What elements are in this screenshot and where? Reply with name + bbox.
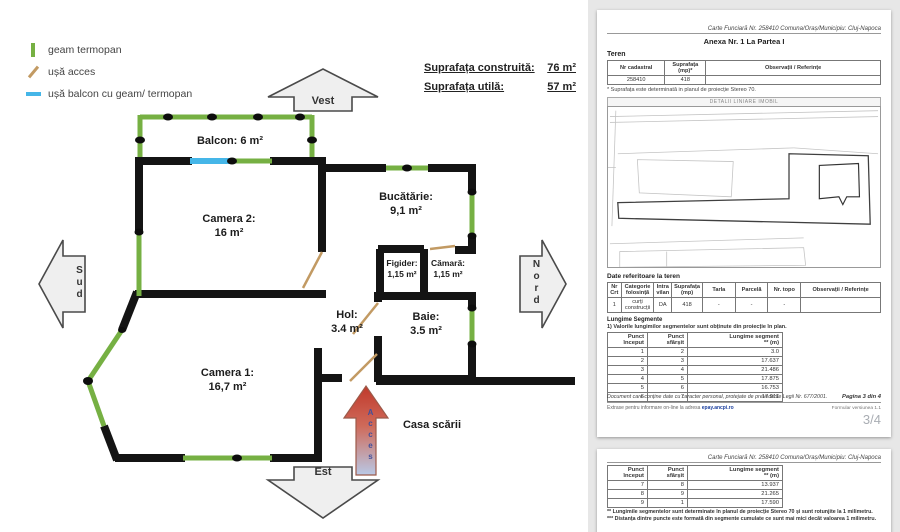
compass-west-label: Vest (292, 95, 354, 107)
col-observatii: Observații / Referințe (706, 61, 881, 76)
built-area-value: 76 m² (547, 62, 576, 74)
carte-funciara-header: Carte Funciară Nr. 258410 Comuna/Oraș/Mu… (607, 26, 881, 34)
date-teren-table: Nr Crt Categorie folosință Intra vilan S… (607, 282, 881, 313)
table-header-row: Punct început Punct sfârșit Lungime segm… (608, 333, 783, 348)
cell-suprafata: 418 (665, 76, 706, 85)
cell: 13.937 (688, 481, 783, 490)
footnote-distanta: *** Distanța dintre puncte este formată … (607, 516, 881, 522)
built-area-label: Suprafața construită: (424, 62, 535, 74)
cell: 7 (608, 481, 648, 490)
room-name: Bucătărie: (352, 190, 460, 204)
room-area: 16,7 m² (150, 380, 305, 394)
cell: 418 (672, 298, 703, 313)
detalii-liniare-banner: DETALII LINIARE IMOBIL (607, 97, 881, 106)
col-nr-cadastral: Nr cadastral (608, 61, 665, 76)
usable-area-row: Suprafața utilă: 57 m² (424, 81, 576, 93)
cell: 1 (648, 499, 688, 508)
col-nr-topo: Nr. topo (768, 283, 801, 298)
compass-north-label: Nord (519, 250, 542, 316)
room-name: Baie: (384, 310, 468, 324)
door-tan-swatch-icon (24, 64, 42, 79)
room-area: 3.4 m² (316, 322, 378, 336)
room-area: 3.5 m² (384, 324, 468, 338)
document-page-3: Carte Funciară Nr. 258410 Comuna/Oraș/Mu… (597, 10, 891, 437)
room-label-figider: Figider: 1,15 m² (381, 258, 423, 281)
cell: 17.637 (688, 357, 783, 366)
cell: - (702, 298, 735, 313)
room-name: Cămară: (425, 258, 471, 269)
table-header-row: Nr Crt Categorie folosință Intra vilan S… (608, 283, 881, 298)
room-name: Camera 2: (158, 212, 300, 226)
cell: 5 (648, 375, 688, 384)
footer-divider (607, 402, 881, 403)
page3-footer: Document care conține date cu caracter p… (607, 394, 881, 427)
col-intravilan: Intra vilan (654, 283, 672, 298)
room-label-camera1: Camera 1: 16,7 m² (150, 366, 305, 395)
room-label-camara: Cămară: 1,15 m² (425, 258, 471, 281)
cell: 2 (648, 348, 688, 357)
table-row: 258410 418 (608, 76, 881, 85)
col-suprafata: Suprafața (mp)* (665, 61, 706, 76)
cell: - (768, 298, 801, 313)
legend: geam termopan ușă acces ușă balcon cu ge… (24, 42, 192, 108)
legend-item-access-door: ușă acces (24, 64, 192, 79)
col-suprafata: Suprafața (mp) (672, 283, 703, 298)
table-header-row: Punct început Punct sfârșit Lungime segm… (608, 466, 783, 481)
cell: 8 (648, 481, 688, 490)
room-label-baie: Baie: 3.5 m² (384, 310, 468, 339)
cell (801, 298, 881, 313)
table-row: 3421.486 (608, 366, 783, 375)
cell: 17.875 (688, 375, 783, 384)
col-lungime-segment: Lungime segment ** (m) (688, 466, 783, 481)
document-page-4: Carte Funciară Nr. 258410 Comuna/Oraș/Mu… (597, 449, 891, 532)
context-lines (608, 111, 878, 267)
col-lungime-line2: ** (m) (691, 340, 779, 346)
room-name: Balcon: 6 m² (150, 134, 310, 148)
date-teren-heading: Date referitoare la teren (607, 273, 881, 280)
cell: 2 (608, 357, 648, 366)
stairs-label: Casa scării (390, 418, 474, 432)
legend-item-window: geam termopan (24, 42, 192, 57)
cell: curți construcții (621, 298, 654, 313)
room-area: 9,1 m² (352, 204, 460, 218)
col-punct-inceput: Punct început (608, 333, 648, 348)
col-punct-inceput: Punct început (608, 466, 648, 481)
access-arrow-label: Acces (357, 400, 375, 470)
col-nr-crt: Nr Crt (608, 283, 622, 298)
window-green-swatch-icon (24, 42, 42, 57)
table-row: 5616.753 (608, 384, 783, 393)
room-area: 1,15 m² (425, 269, 471, 280)
col-punct-sfarsit: Punct sfârșit (648, 333, 688, 348)
room-name: Hol: (316, 308, 378, 322)
page-number: Pagina 3 din 4 (842, 394, 881, 400)
cell: 3 (608, 366, 648, 375)
table-row: 9117.590 (608, 499, 783, 508)
room-name: Camera 1: (150, 366, 305, 380)
form-version: Formular versiunea 1.1 (832, 406, 881, 411)
cell: - (735, 298, 768, 313)
cell: 16.753 (688, 384, 783, 393)
cell: 9 (608, 499, 648, 508)
table-row: 123.0 (608, 348, 783, 357)
segments-table-p4: Punct început Punct sfârșit Lungime segm… (607, 465, 783, 508)
extract-note: Extrase pentru informare on-line la adre… (607, 405, 734, 411)
table-row: 7813.937 (608, 481, 783, 490)
extract-note-text: Extrase pentru informare on-line la adre… (607, 405, 700, 411)
lungime-note: 1) Valorile lungimilor segmentelor sunt … (607, 324, 881, 330)
cell: 4 (648, 366, 688, 375)
cell: 8 (608, 490, 648, 499)
room-label-camera2: Camera 2: 16 m² (158, 212, 300, 241)
floorplan-panel: geam termopan ușă acces ușă balcon cu ge… (0, 0, 588, 532)
usable-area-value: 57 m² (547, 81, 576, 93)
teren-heading: Teren (607, 51, 881, 58)
site-plan-drawing (608, 107, 880, 267)
legend-label: geam termopan (48, 44, 122, 56)
document-panel: Carte Funciară Nr. 258410 Comuna/Oraș/Mu… (588, 0, 900, 532)
compass-south-label: Sud (62, 252, 85, 314)
cell: 6 (648, 384, 688, 393)
legend-label: ușă acces (48, 66, 95, 78)
footnote-stereo: ** Lungimile segmentelor sunt determinat… (607, 509, 881, 515)
cell: 4 (608, 375, 648, 384)
room-area: 16 m² (158, 226, 300, 240)
segments-rows: 7813.9378921.2659117.590 (608, 481, 783, 508)
table-header-row: Nr cadastral Suprafața (mp)* Observații … (608, 61, 881, 76)
cell: DA (654, 298, 672, 313)
privacy-note: Document care conține date cu caracter p… (607, 394, 827, 400)
cell-nr-cadastral: 258410 (608, 76, 665, 85)
usable-area-label: Suprafața utilă: (424, 81, 504, 93)
compass-east-label: Est (292, 466, 354, 478)
site-plan-box (607, 106, 881, 268)
col-categorie: Categorie folosință (621, 283, 654, 298)
cell-observatii (706, 76, 881, 85)
room-label-balcon: Balcon: 6 m² (150, 134, 310, 148)
balcony-door-blue-swatch-icon (24, 86, 42, 101)
col-punct-sfarsit: Punct sfârșit (648, 466, 688, 481)
area-summary: Suprafața construită: 76 m² Suprafața ut… (424, 62, 576, 100)
cell: 5 (608, 384, 648, 393)
cell: 17.590 (688, 499, 783, 508)
anexa-title: Anexa Nr. 1 La Partea I (607, 37, 881, 46)
col-observatii: Observații / Referințe (801, 283, 881, 298)
room-area: 1,15 m² (381, 269, 423, 280)
table-row: 2317.637 (608, 357, 783, 366)
col-parcela: Parcelă (735, 283, 768, 298)
table-row: 1 curți construcții DA 418 - - - (608, 298, 881, 313)
carte-funciara-header: Carte Funciară Nr. 258410 Comuna/Oraș/Mu… (607, 455, 881, 463)
legend-item-balcony-door: ușă balcon cu geam/ termopan (24, 86, 192, 101)
col-lungime-line2: ** (m) (691, 473, 779, 479)
epay-link[interactable]: epay.ancpi.ro (702, 405, 734, 411)
cell: 3.0 (688, 348, 783, 357)
lungime-heading: Lungime Segmente (607, 317, 881, 323)
cell: 21.265 (688, 490, 783, 499)
table-row: 4517.875 (608, 375, 783, 384)
cell: 3 (648, 357, 688, 366)
building-outline (819, 164, 859, 205)
col-lungime-segment: Lungime segment ** (m) (688, 333, 783, 348)
table-row: 8921.265 (608, 490, 783, 499)
cell: 21.486 (688, 366, 783, 375)
room-name: Figider: (381, 258, 423, 269)
segments-table-p3: Punct început Punct sfârșit Lungime segm… (607, 332, 783, 402)
room-label-hol: Hol: 3.4 m² (316, 308, 378, 337)
built-area-row: Suprafața construită: 76 m² (424, 62, 576, 74)
stereo70-note: * Suprafața este determinată in planul d… (607, 87, 881, 93)
col-tarla: Tarla (702, 283, 735, 298)
room-label-bucatarie: Bucătărie: 9,1 m² (352, 190, 460, 219)
teren-table: Nr cadastral Suprafața (mp)* Observații … (607, 60, 881, 85)
screenshot: geam termopan ușă acces ușă balcon cu ge… (0, 0, 900, 532)
cell: 1 (608, 298, 622, 313)
cell: 1 (608, 348, 648, 357)
legend-label: ușă balcon cu geam/ termopan (48, 88, 192, 100)
page-badge: 3/4 (607, 412, 881, 427)
cell: 9 (648, 490, 688, 499)
